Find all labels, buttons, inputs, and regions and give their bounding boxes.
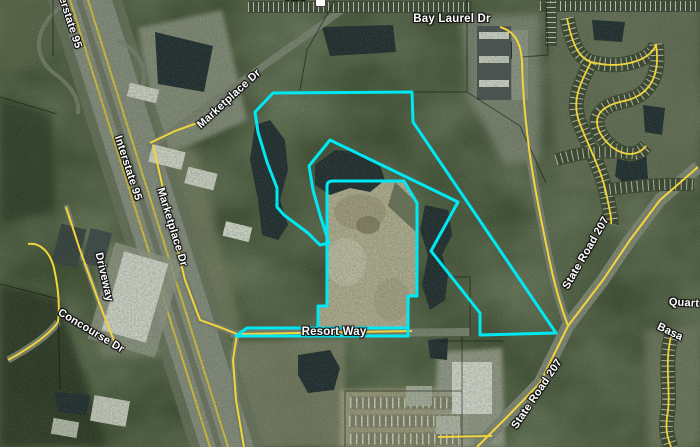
aerial-imagery-layer: [0, 0, 700, 447]
poi-icon: [315, 0, 326, 7]
map-canvas[interactable]: Interstate 95 Interstate 95 Marketplace …: [0, 0, 700, 447]
canopy-highlights: [0, 0, 700, 447]
